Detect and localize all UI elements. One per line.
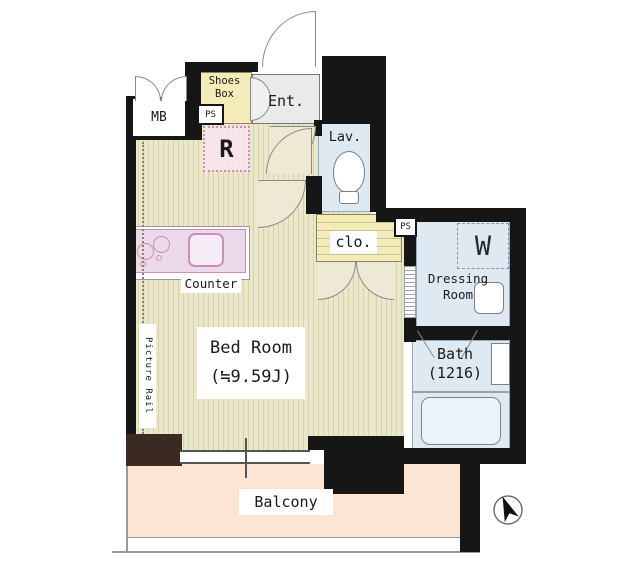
refrigerator-label: R: [219, 135, 233, 163]
wall-corner: [126, 434, 182, 466]
pipe-space-label: PS: [205, 110, 216, 120]
picture-rail-label: Picture Rail: [139, 324, 156, 428]
toilet-tank: [339, 191, 359, 204]
wall: [308, 436, 326, 450]
wall: [460, 460, 480, 552]
dressing-room-label: Dressing Room: [410, 270, 506, 304]
wall: [126, 96, 136, 436]
wall: [185, 62, 258, 72]
stove-burner-icon: [153, 236, 170, 253]
balcony-label: Balcony: [239, 489, 333, 515]
bathtub: [421, 397, 501, 445]
wall: [510, 208, 526, 460]
refrigerator-space: R: [203, 126, 250, 172]
closet-label: clo.: [330, 231, 377, 254]
bath-shelf: [491, 343, 510, 385]
meter-box-label: MB: [151, 110, 167, 125]
washer-label: W: [475, 231, 491, 262]
stove-burner-icon: [137, 243, 154, 260]
stove-knob-icon: [156, 255, 162, 261]
wall: [306, 176, 322, 214]
washer-space: W: [457, 223, 509, 269]
meter-box: MB: [131, 97, 187, 138]
toilet-bowl: [333, 151, 365, 193]
wall: [322, 56, 386, 124]
balcony-rail-left: [126, 466, 128, 552]
floor-plan: R MB PS PS: [0, 0, 640, 569]
meter-box-door-left: [135, 76, 161, 101]
wall: [324, 436, 404, 494]
pipe-space-2: PS: [394, 217, 417, 237]
north-arrow-icon: [490, 492, 526, 528]
shoes-box-label: Shoes Box: [197, 74, 252, 102]
kitchen-sink: [188, 233, 224, 267]
bath-midline: [412, 391, 510, 393]
balcony-rail-bottom: [112, 551, 480, 553]
wall: [370, 120, 386, 212]
lavatory-label: Lav.: [318, 128, 372, 146]
counter-label: Counter: [181, 275, 241, 293]
bedroom-label: Bed Room (≒9.59J): [197, 327, 305, 399]
wall: [404, 236, 416, 266]
pipe-space-label: PS: [400, 222, 411, 232]
wall: [404, 326, 512, 340]
pipe-space-1: PS: [197, 104, 224, 125]
window-center-tick: [245, 438, 247, 478]
bath-label: Bath (1216): [418, 343, 492, 385]
entrance-label: Ent.: [252, 90, 320, 112]
meter-box-door-right: [161, 76, 187, 101]
entrance-door: [262, 11, 316, 67]
